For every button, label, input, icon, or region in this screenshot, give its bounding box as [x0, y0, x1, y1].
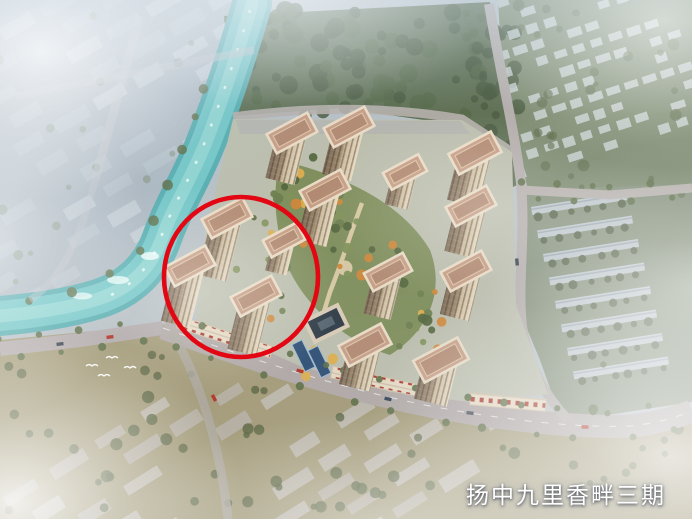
highlight-ellipse [164, 197, 318, 357]
project-caption: 扬中九里香畔三期 [466, 483, 666, 508]
aerial-rendering: 扬中九里香畔三期 [0, 0, 692, 519]
annotation-overlay [0, 0, 692, 519]
